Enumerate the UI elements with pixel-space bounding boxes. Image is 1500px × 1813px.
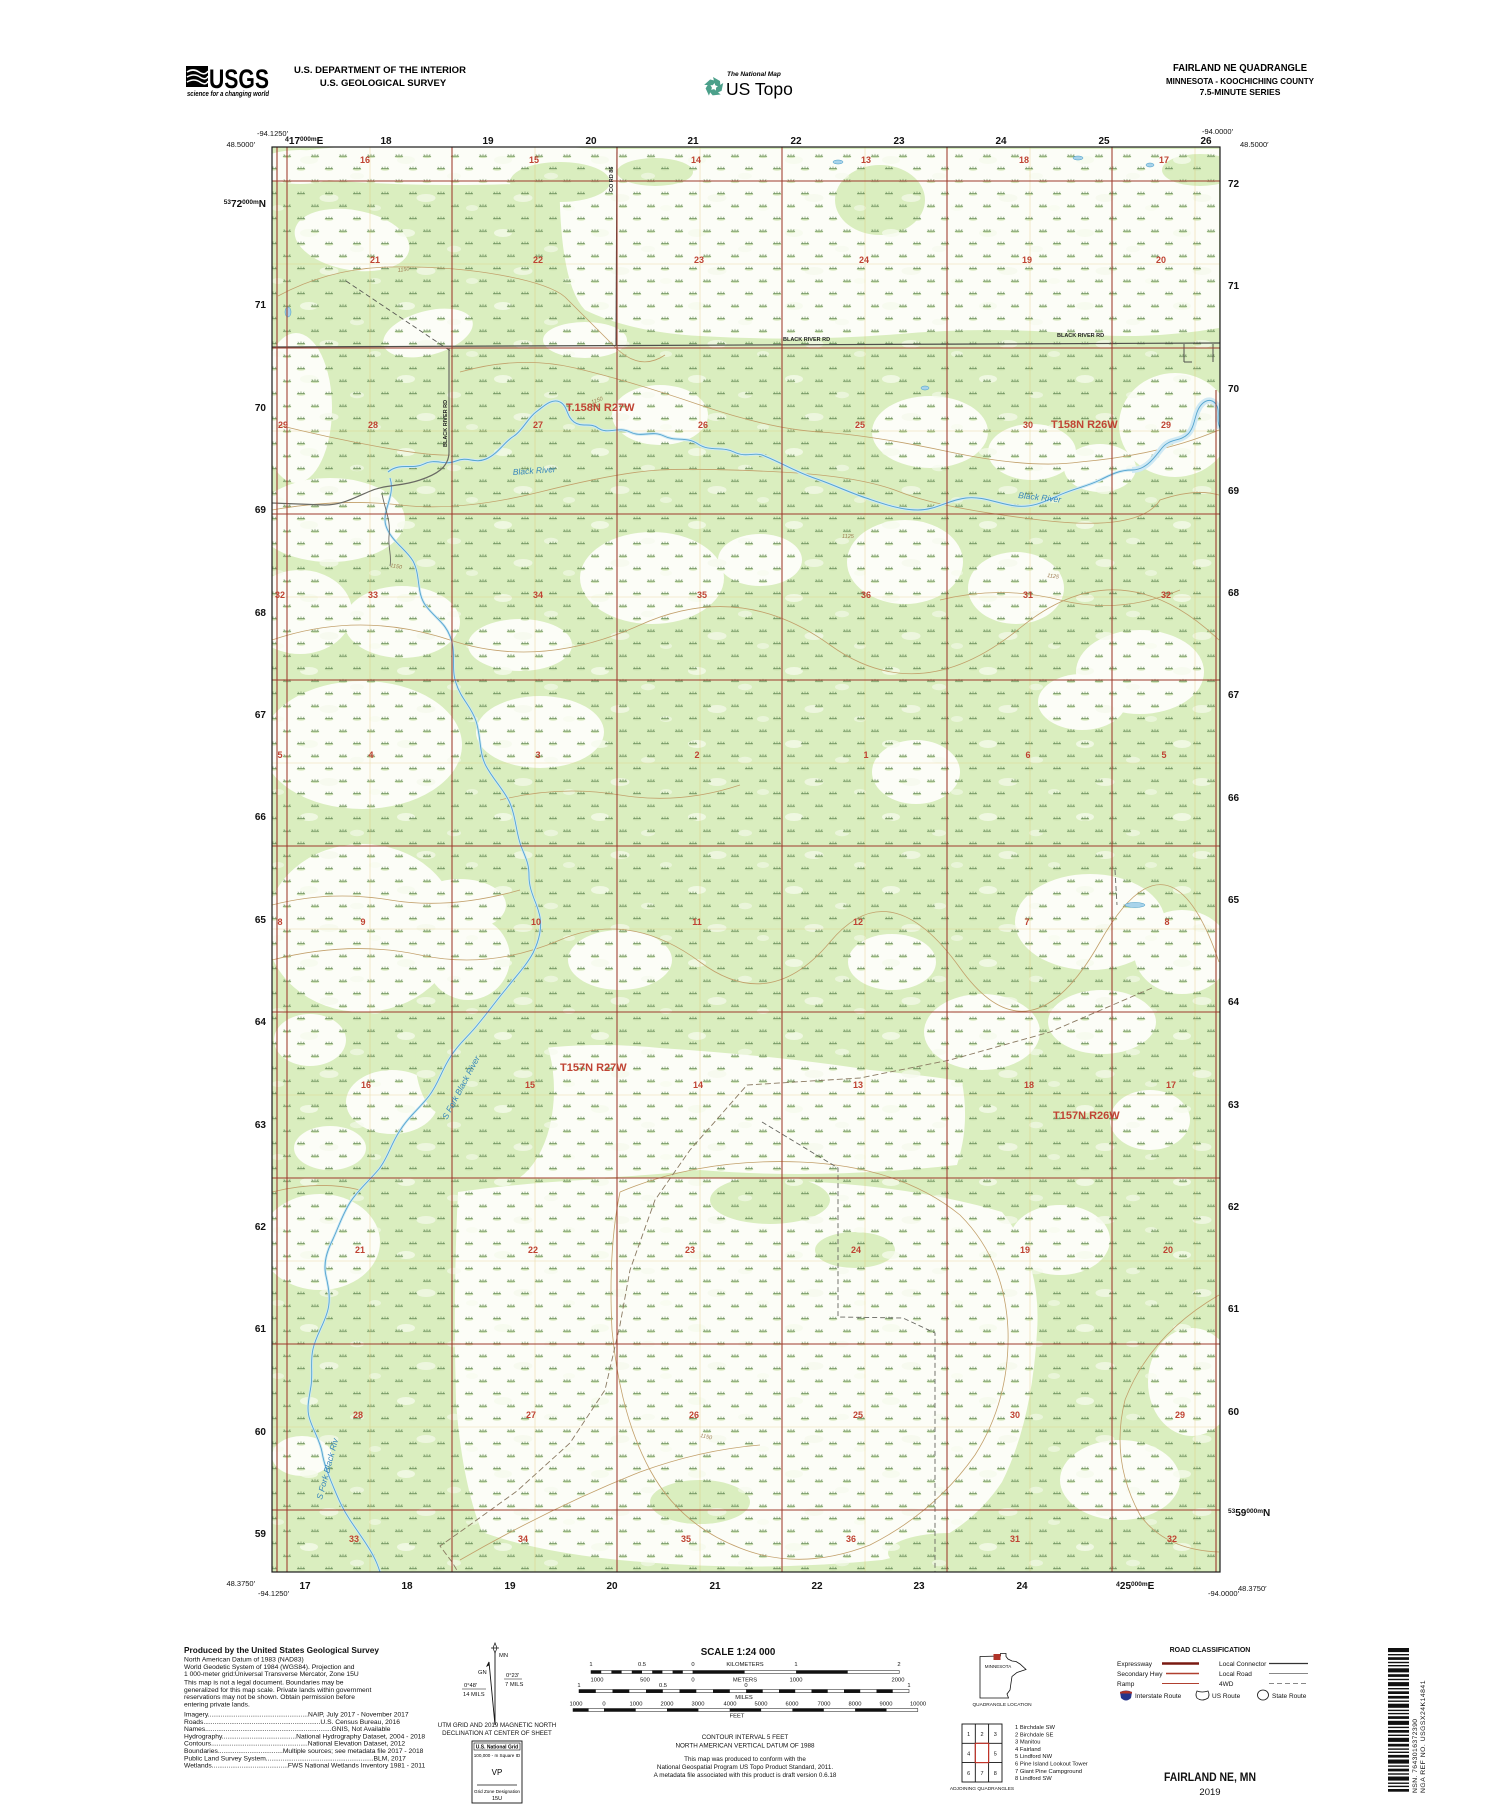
svg-text:National Geospatial Program US: National Geospatial Program US Topo Prod… (657, 1764, 833, 1771)
svg-text:26: 26 (698, 420, 708, 430)
svg-text:16: 16 (360, 155, 370, 165)
svg-text:Roads.........................: Roads...................................… (184, 1719, 400, 1726)
svg-text:NGA REF NO. USGSX24K14841: NGA REF NO. USGSX24K14841 (1420, 1680, 1427, 1793)
svg-text:0°48′: 0°48′ (464, 1683, 477, 1689)
svg-text:-94.0000′: -94.0000′ (1208, 1589, 1240, 1598)
svg-text:500: 500 (640, 1678, 650, 1684)
svg-text:24: 24 (995, 136, 1007, 147)
svg-text:0.5: 0.5 (659, 1683, 667, 1689)
svg-text:64: 64 (255, 1017, 267, 1028)
svg-text:3 Manitou: 3 Manitou (1015, 1740, 1040, 1746)
svg-text:1: 1 (577, 1683, 580, 1689)
svg-text:64: 64 (1228, 997, 1240, 1008)
svg-text:Wetlands......................: Wetlands................................… (184, 1763, 426, 1770)
svg-text:60: 60 (1228, 1407, 1240, 1418)
svg-text:24: 24 (859, 255, 869, 265)
svg-text:32: 32 (275, 590, 285, 600)
svg-text:MILES: MILES (735, 1695, 753, 1701)
svg-text:36: 36 (846, 1534, 856, 1544)
svg-text:5000: 5000 (755, 1702, 768, 1708)
svg-text:417000mE: 417000mE (285, 136, 324, 147)
svg-text:48.3750′: 48.3750′ (1238, 1584, 1267, 1593)
svg-text:FAIRLAND NE, MN: FAIRLAND NE, MN (1164, 1772, 1256, 1784)
svg-text:5: 5 (1161, 750, 1166, 760)
svg-text:22: 22 (790, 136, 802, 147)
svg-text:68: 68 (255, 608, 267, 619)
svg-text:33: 33 (368, 590, 378, 600)
svg-text:21: 21 (687, 136, 699, 147)
svg-text:60: 60 (255, 1427, 267, 1438)
svg-text:66: 66 (255, 812, 267, 823)
svg-text:-94.0000′: -94.0000′ (1202, 127, 1234, 136)
svg-text:Local Connector: Local Connector (1219, 1661, 1267, 1668)
svg-text:30: 30 (1010, 1410, 1020, 1420)
svg-text:MN: MN (499, 1653, 508, 1659)
svg-text:10000: 10000 (910, 1702, 926, 1708)
svg-text:SCALE 1:24 000: SCALE 1:24 000 (701, 1647, 776, 1658)
svg-text:19: 19 (1022, 255, 1032, 265)
svg-text:U.S. National Grid: U.S. National Grid (476, 1745, 519, 1751)
svg-text:Interstate Route: Interstate Route (1135, 1693, 1182, 1700)
svg-text:32: 32 (1161, 590, 1171, 600)
svg-text:KILOMETERS: KILOMETERS (726, 1662, 763, 1668)
svg-text:23: 23 (694, 255, 704, 265)
svg-text:2019: 2019 (1199, 1787, 1220, 1798)
svg-text:7.5-MINUTE SERIES: 7.5-MINUTE SERIES (1200, 87, 1281, 97)
svg-text:1 000-meter grid:Universal Tra: 1 000-meter grid:Universal Transverse Me… (184, 1671, 359, 1678)
svg-text:4000: 4000 (724, 1702, 737, 1708)
svg-text:59: 59 (255, 1529, 267, 1540)
svg-text:2: 2 (694, 750, 699, 760)
svg-text:14 MILS: 14 MILS (463, 1692, 485, 1698)
svg-text:6000: 6000 (786, 1702, 799, 1708)
svg-text:31: 31 (1023, 590, 1033, 600)
svg-text:North American Datum of 1983 (: North American Datum of 1983 (NAD83) (184, 1657, 304, 1664)
svg-text:4: 4 (368, 750, 373, 760)
svg-text:ROAD CLASSIFICATION: ROAD CLASSIFICATION (1170, 1647, 1251, 1654)
svg-text:70: 70 (1228, 384, 1240, 395)
svg-text:NSN. 7643016372390: NSN. 7643016372390 (1412, 1719, 1419, 1793)
svg-text:19: 19 (482, 136, 494, 147)
svg-text:24: 24 (1016, 1581, 1028, 1592)
svg-text:32: 32 (1167, 1534, 1177, 1544)
svg-text:25: 25 (1098, 136, 1110, 147)
svg-text:25: 25 (853, 1410, 863, 1420)
svg-text:6 Pine Island Lookout Tower: 6 Pine Island Lookout Tower (1015, 1762, 1088, 1768)
svg-text:1: 1 (794, 1662, 797, 1668)
svg-text:8: 8 (277, 917, 282, 927)
svg-text:3000: 3000 (692, 1702, 705, 1708)
svg-text:35: 35 (697, 590, 707, 600)
svg-text:20: 20 (606, 1581, 618, 1592)
svg-text:-94.1250′: -94.1250′ (257, 129, 289, 138)
svg-text:71: 71 (1228, 281, 1240, 292)
svg-text:Hydrography...................: Hydrography.............................… (184, 1733, 425, 1740)
svg-text:17: 17 (1166, 1080, 1176, 1090)
svg-text:4 Fairland: 4 Fairland (1015, 1747, 1041, 1753)
svg-text:23: 23 (685, 1245, 695, 1255)
svg-text:17: 17 (299, 1581, 311, 1592)
svg-text:23: 23 (913, 1581, 925, 1592)
svg-text:61: 61 (255, 1324, 267, 1335)
svg-text:State Route: State Route (1272, 1693, 1307, 1700)
svg-text:16: 16 (361, 1080, 371, 1090)
svg-text:67: 67 (1228, 690, 1240, 701)
svg-text:21: 21 (355, 1245, 365, 1255)
svg-text:T157N R26W: T157N R26W (1053, 1110, 1120, 1122)
svg-text:5372000mN: 5372000mN (224, 199, 266, 210)
svg-text:U.S. DEPARTMENT OF THE INTERIO: U.S. DEPARTMENT OF THE INTERIOR (294, 65, 466, 76)
svg-text:GN: GN (478, 1670, 487, 1676)
svg-text:7 Giant Pine Campground: 7 Giant Pine Campground (1015, 1769, 1082, 1775)
svg-text:65: 65 (255, 915, 267, 926)
svg-text:33: 33 (349, 1534, 359, 1544)
svg-text:NORTH AMERICAN VERTICAL DATUM: NORTH AMERICAN VERTICAL DATUM OF 1988 (675, 1743, 815, 1750)
svg-text:9000: 9000 (880, 1702, 893, 1708)
svg-text:26: 26 (689, 1410, 699, 1420)
svg-text:12: 12 (853, 917, 863, 927)
svg-text:1: 1 (907, 1683, 910, 1689)
svg-text:6: 6 (1025, 750, 1030, 760)
svg-text:VP: VP (492, 1768, 503, 1777)
svg-text:15: 15 (529, 155, 539, 165)
svg-text:1000: 1000 (570, 1702, 583, 1708)
svg-text:World Geodetic System of 1984: World Geodetic System of 1984 (WGS84). P… (184, 1664, 355, 1671)
svg-text:14: 14 (693, 1080, 703, 1090)
svg-text:36: 36 (861, 590, 871, 600)
svg-text:This map is not a legal docume: This map is not a legal document. Bounda… (184, 1680, 344, 1687)
svg-text:Boundaries....................: Boundaries..............................… (184, 1748, 424, 1755)
svg-text:FEET: FEET (730, 1714, 745, 1720)
svg-text:35: 35 (681, 1534, 691, 1544)
svg-text:22: 22 (811, 1581, 823, 1592)
svg-text:1: 1 (863, 750, 868, 760)
svg-text:7: 7 (1024, 917, 1029, 927)
svg-text:66: 66 (1228, 793, 1240, 804)
svg-text:2000: 2000 (661, 1702, 674, 1708)
svg-text:19: 19 (504, 1581, 516, 1592)
svg-text:1125: 1125 (842, 534, 855, 540)
svg-text:MINNESOTA - KOOCHICHING COUNTY: MINNESOTA - KOOCHICHING COUNTY (1166, 76, 1314, 86)
svg-text:20: 20 (1163, 1245, 1173, 1255)
svg-text:US Topo: US Topo (726, 79, 793, 99)
svg-text:14: 14 (691, 155, 701, 165)
svg-text:8: 8 (994, 1771, 997, 1777)
svg-text:48.3750′: 48.3750′ (226, 1579, 255, 1588)
svg-text:69: 69 (1228, 486, 1240, 497)
svg-text:BLACK RIVER RD: BLACK RIVER RD (443, 400, 449, 447)
svg-text:100,000 - m Square ID: 100,000 - m Square ID (474, 1753, 521, 1758)
svg-text:7: 7 (980, 1771, 983, 1777)
svg-text:27: 27 (533, 420, 543, 430)
svg-text:Local Road: Local Road (1219, 1671, 1252, 1678)
svg-text:The National Map: The National Map (727, 71, 781, 78)
svg-text:29: 29 (278, 420, 288, 430)
svg-text:5: 5 (277, 750, 282, 760)
svg-text:2: 2 (897, 1662, 900, 1668)
svg-text:generalized for this map scale: generalized for this map scale. Private … (184, 1687, 371, 1694)
svg-text:22: 22 (533, 255, 543, 265)
svg-text:70: 70 (255, 403, 267, 414)
svg-text:USGS: USGS (209, 64, 269, 94)
svg-text:63: 63 (1228, 1100, 1240, 1111)
svg-text:67: 67 (255, 710, 267, 721)
svg-text:MINNESOTA: MINNESOTA (985, 1664, 1011, 1669)
svg-text:Secondary Hwy: Secondary Hwy (1117, 1671, 1163, 1678)
svg-text:68: 68 (1228, 588, 1240, 599)
svg-text:72: 72 (1228, 179, 1240, 190)
svg-text:30: 30 (1023, 420, 1033, 430)
svg-text:17: 17 (1159, 155, 1169, 165)
svg-text:0: 0 (691, 1662, 694, 1668)
svg-text:US Route: US Route (1212, 1693, 1241, 1700)
svg-text:34: 34 (533, 590, 543, 600)
svg-text:science for a changing world: science for a changing world (187, 91, 270, 98)
svg-text:7000: 7000 (818, 1702, 831, 1708)
svg-text:34: 34 (518, 1534, 528, 1544)
svg-text:28: 28 (368, 420, 378, 430)
svg-text:18: 18 (401, 1581, 413, 1592)
svg-text:CO RD 86: CO RD 86 (609, 167, 615, 192)
svg-text:0: 0 (744, 1683, 747, 1689)
svg-text:0: 0 (691, 1678, 694, 1684)
svg-text:19: 19 (1020, 1245, 1030, 1255)
svg-text:0: 0 (602, 1702, 605, 1708)
svg-text:8: 8 (1164, 917, 1169, 927)
svg-text:1000: 1000 (790, 1678, 803, 1684)
svg-text:65: 65 (1228, 895, 1240, 906)
svg-text:18: 18 (380, 136, 392, 147)
svg-text:Public Land Survey System.....: Public Land Survey System...............… (184, 1755, 406, 1762)
svg-text:entering private lands.: entering private lands. (184, 1701, 250, 1708)
svg-text:CONTOUR INTERVAL 5 FEET: CONTOUR INTERVAL 5 FEET (702, 1734, 789, 1741)
svg-text:62: 62 (255, 1222, 267, 1233)
svg-text:3: 3 (535, 750, 540, 760)
svg-text:10: 10 (531, 917, 541, 927)
svg-text:21: 21 (709, 1581, 721, 1592)
svg-text:UTM GRID AND 2019 MAGNETIC NOR: UTM GRID AND 2019 MAGNETIC NORTH (438, 1722, 557, 1729)
svg-text:28: 28 (353, 1410, 363, 1420)
svg-text:18: 18 (1024, 1080, 1034, 1090)
svg-text:BLACK RIVER RD: BLACK RIVER RD (783, 337, 830, 343)
svg-text:26: 26 (1200, 136, 1212, 147)
svg-text:13: 13 (861, 155, 871, 165)
svg-text:25: 25 (855, 420, 865, 430)
svg-text:ADJOINING QUADRANGLES: ADJOINING QUADRANGLES (950, 1786, 1014, 1792)
svg-text:1: 1 (589, 1662, 592, 1668)
svg-text:QUADRANGLE LOCATION: QUADRANGLE LOCATION (972, 1702, 1032, 1708)
svg-text:13: 13 (853, 1080, 863, 1090)
svg-text:11: 11 (692, 917, 702, 927)
svg-text:62: 62 (1228, 1202, 1240, 1213)
svg-text:69: 69 (255, 505, 267, 516)
svg-text:18: 18 (1019, 155, 1029, 165)
svg-text:Expressway: Expressway (1117, 1661, 1153, 1668)
svg-text:Names.........................: Names...................................… (184, 1726, 391, 1733)
svg-text:Produced by the United States: Produced by the United States Geological… (184, 1645, 379, 1655)
svg-text:29: 29 (1161, 420, 1171, 430)
svg-text:2 Birchdale SE: 2 Birchdale SE (1015, 1732, 1053, 1738)
svg-text:Contours......................: Contours................................… (184, 1741, 405, 1748)
svg-text:DECLINATION AT CENTER OF SHEET: DECLINATION AT CENTER OF SHEET (442, 1730, 552, 1737)
svg-text:1: 1 (967, 1732, 970, 1738)
svg-text:23: 23 (893, 136, 905, 147)
svg-text:21: 21 (370, 255, 380, 265)
svg-text:FAIRLAND NE QUADRANGLE: FAIRLAND NE QUADRANGLE (1173, 62, 1307, 74)
svg-text:T157N R27W: T157N R27W (560, 1062, 627, 1074)
svg-text:29: 29 (1175, 1410, 1185, 1420)
svg-text:5: 5 (994, 1752, 997, 1758)
svg-text:1000: 1000 (591, 1678, 604, 1684)
svg-text:Imagery.......................: Imagery.................................… (184, 1712, 409, 1719)
svg-text:6: 6 (967, 1771, 970, 1777)
svg-text:4WD: 4WD (1219, 1681, 1234, 1688)
svg-text:reservations may not be shown.: reservations may not be shown. Obtain pe… (184, 1694, 355, 1701)
svg-text:3: 3 (994, 1732, 997, 1738)
svg-text:A metadata file associated wit: A metadata file associated with this pro… (654, 1772, 837, 1779)
svg-text:27: 27 (526, 1410, 536, 1420)
svg-text:15: 15 (525, 1080, 535, 1090)
svg-text:71: 71 (255, 300, 267, 311)
svg-text:20: 20 (1156, 255, 1166, 265)
svg-text:This map was produced to confo: This map was produced to conform with th… (684, 1756, 806, 1763)
svg-text:Ramp: Ramp (1117, 1681, 1135, 1688)
svg-text:8000: 8000 (849, 1702, 862, 1708)
svg-text:U.S. GEOLOGICAL SURVEY: U.S. GEOLOGICAL SURVEY (320, 78, 447, 89)
svg-text:61: 61 (1228, 1304, 1240, 1315)
svg-text:22: 22 (528, 1245, 538, 1255)
svg-text:48.5000′: 48.5000′ (226, 140, 255, 149)
svg-text:Grid Zone Designation: Grid Zone Designation (474, 1789, 520, 1794)
svg-text:2000: 2000 (892, 1678, 905, 1684)
svg-text:7 MILS: 7 MILS (505, 1682, 523, 1688)
svg-text:5359000mN: 5359000mN (1228, 1508, 1270, 1519)
svg-text:31: 31 (1010, 1534, 1020, 1544)
svg-text:T158N R26W: T158N R26W (1051, 419, 1118, 431)
svg-text:24: 24 (851, 1245, 861, 1255)
svg-text:1000: 1000 (630, 1702, 643, 1708)
svg-text:63: 63 (255, 1120, 267, 1131)
svg-text:20: 20 (585, 136, 597, 147)
svg-text:4: 4 (967, 1752, 970, 1758)
svg-text:15U: 15U (492, 1796, 502, 1802)
svg-text:BLACK RIVER RD: BLACK RIVER RD (1057, 333, 1104, 339)
svg-text:425000mE: 425000mE (1116, 1581, 1155, 1592)
svg-text:0.5: 0.5 (638, 1662, 646, 1668)
svg-text:-94.1250′: -94.1250′ (258, 1589, 290, 1598)
svg-text:9: 9 (360, 917, 365, 927)
svg-text:0°23′: 0°23′ (506, 1673, 519, 1679)
svg-text:T.158N R27W: T.158N R27W (566, 402, 635, 414)
svg-text:1 Birchdale SW: 1 Birchdale SW (1015, 1725, 1055, 1731)
svg-text:5 Lindford NW: 5 Lindford NW (1015, 1754, 1053, 1760)
svg-text:8 Lindford SW: 8 Lindford SW (1015, 1776, 1052, 1782)
svg-text:48.5000′: 48.5000′ (1240, 140, 1269, 149)
svg-text:2: 2 (980, 1732, 983, 1738)
